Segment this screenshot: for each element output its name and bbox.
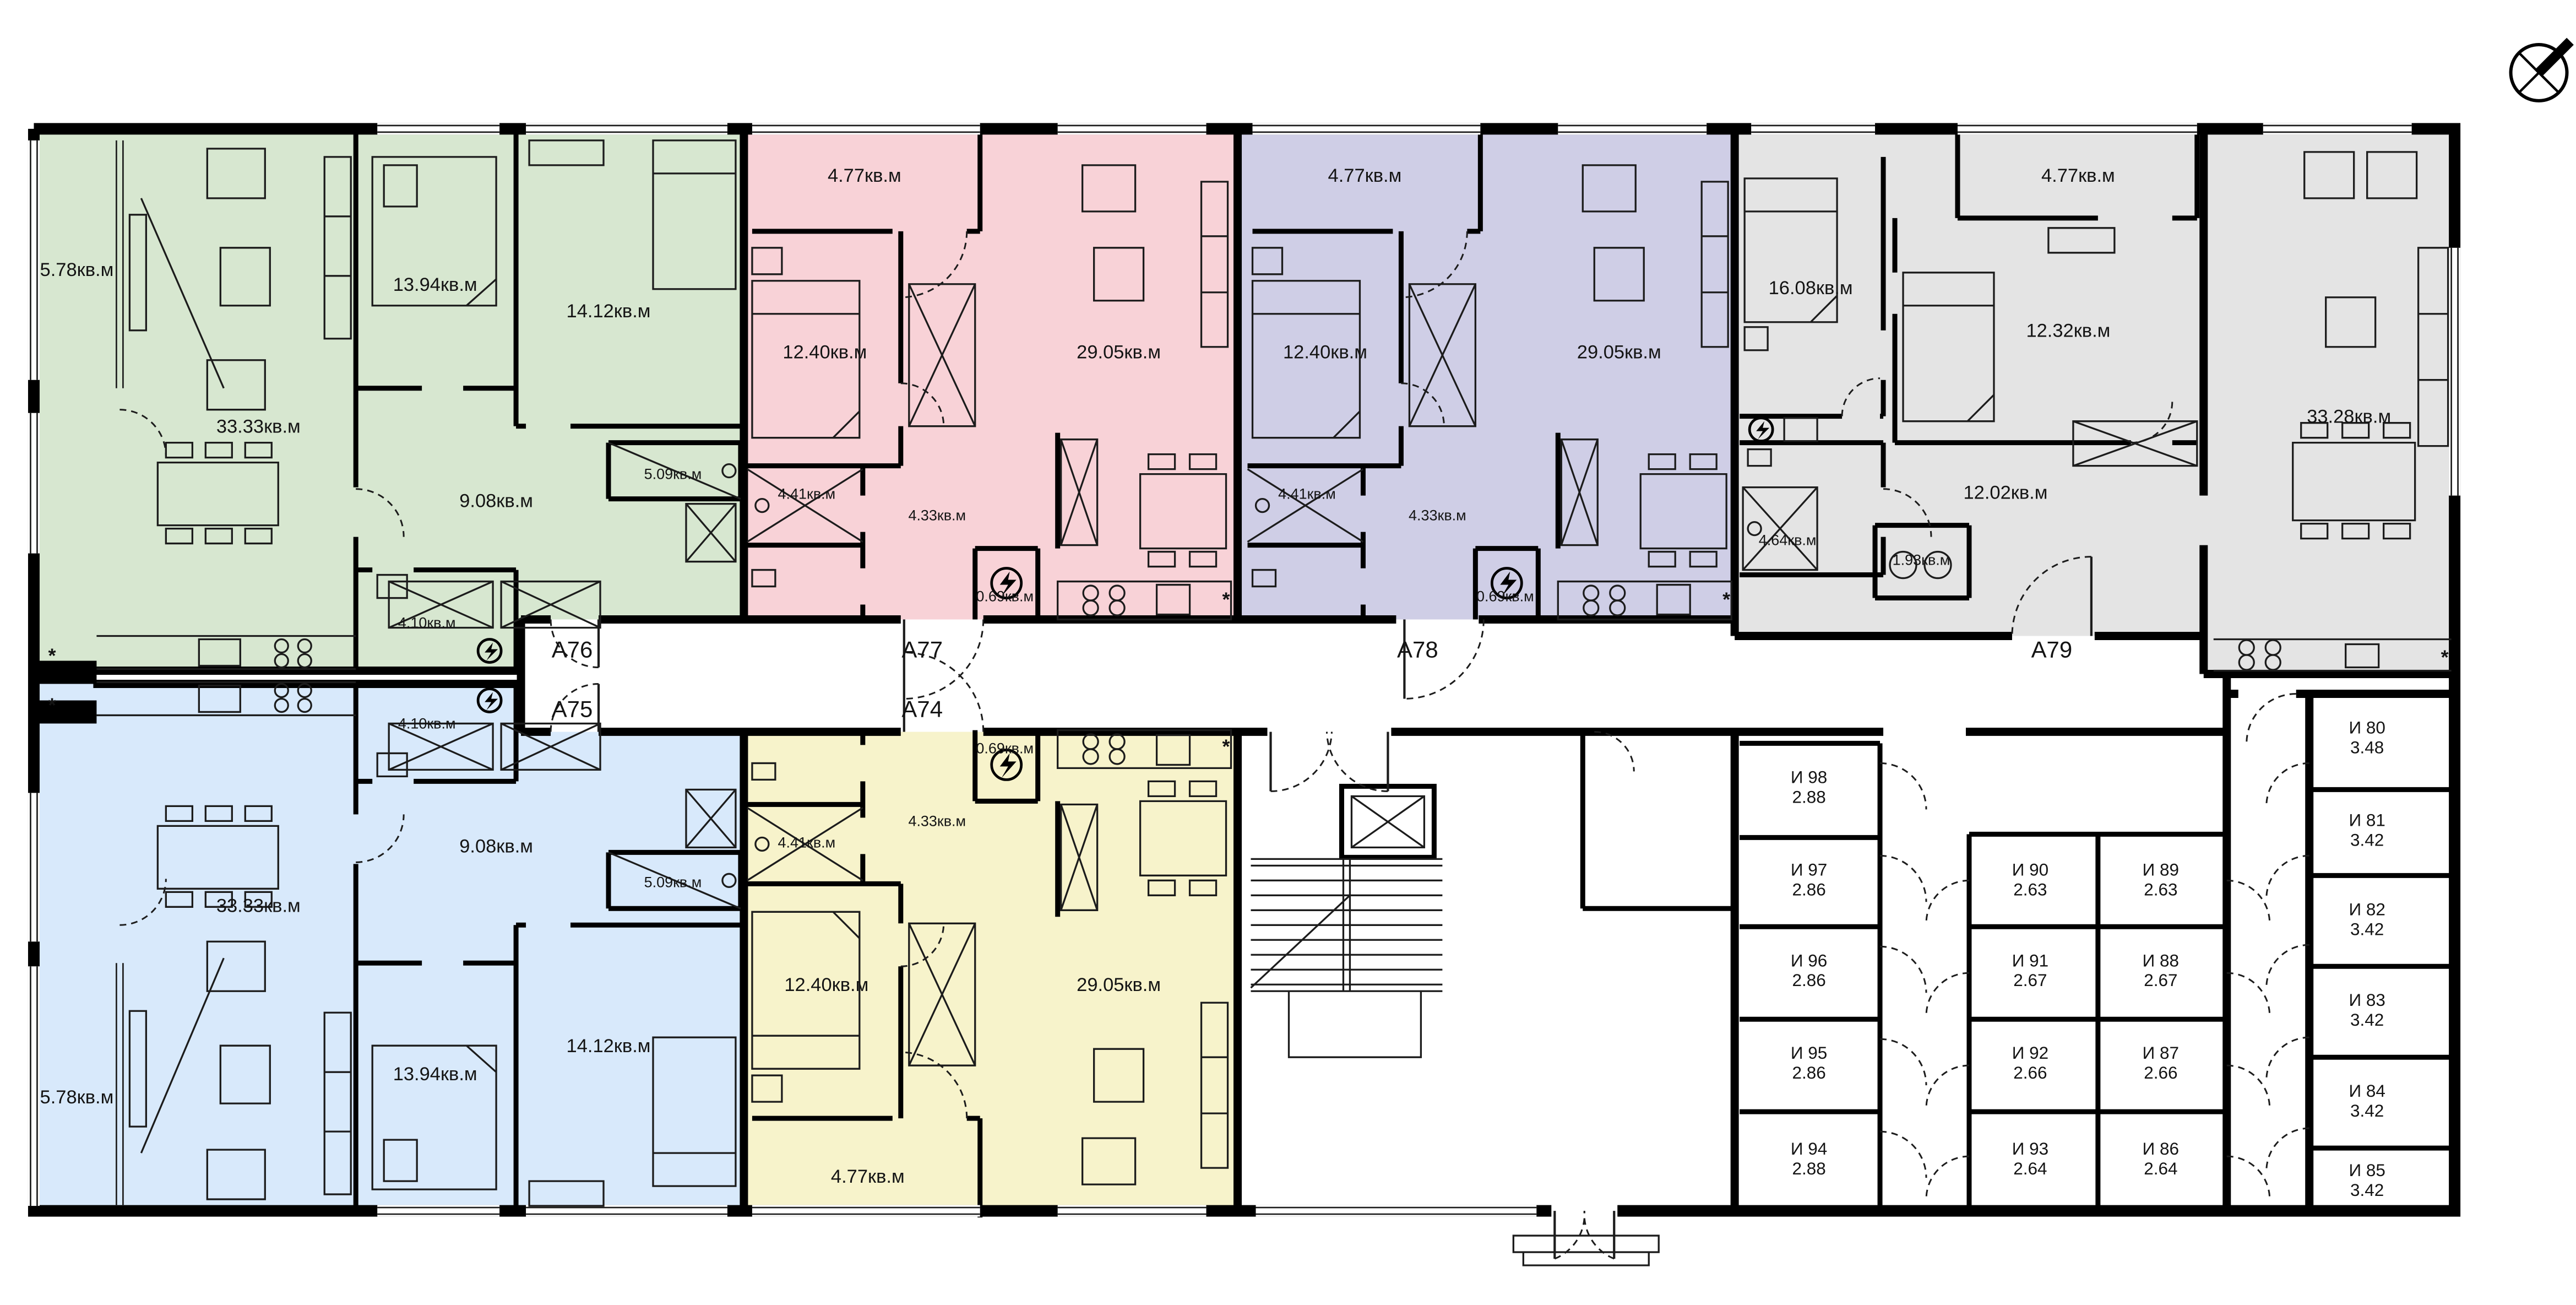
room-area-label: 0.69кв.м (976, 740, 1034, 756)
room-area-label: 4.41кв.м (778, 834, 836, 851)
room-area-label: 4.33кв.м (908, 813, 966, 829)
apartment-number-label: A76 (552, 636, 593, 662)
note-asterisk: * (48, 694, 56, 716)
storage-unit-label: И 972.86 (1791, 860, 1827, 899)
room-area-label: 12.02кв.м (1963, 483, 2047, 503)
room-area-label: 4.77кв.м (831, 1166, 905, 1187)
room-area-label: 4.10кв.м (398, 715, 456, 732)
storage-unit-label: И 942.88 (1791, 1139, 1827, 1178)
storage-unit-label: И 922.66 (2012, 1043, 2048, 1082)
storage-unit-label: И 912.67 (2012, 951, 2048, 990)
apartment-number-label: A78 (1397, 636, 1438, 662)
storage-unit-label: И 882.67 (2143, 951, 2179, 990)
room-area-label: 4.41кв.м (1278, 486, 1336, 502)
apartment-a79-region (1735, 129, 2454, 674)
storage-unit-label: И 823.42 (2349, 900, 2385, 939)
room-area-label: 14.12кв.м (567, 1036, 651, 1057)
room-area-label: 4.77кв.м (1328, 165, 1402, 186)
room-area-label: 1.93кв.м (1893, 552, 1950, 568)
note-asterisk: * (1222, 735, 1230, 757)
room-area-label: 4.41кв.м (778, 486, 836, 502)
room-area-label: 29.05кв.м (1077, 974, 1161, 995)
storage-unit-label: И 962.86 (1791, 951, 1827, 990)
note-asterisk: * (1722, 588, 1730, 611)
apartment-number-label: A77 (901, 636, 943, 662)
note-asterisk: * (48, 644, 56, 667)
room-area-label: 9.08кв.м (459, 491, 533, 512)
storage-unit-label: И 803.48 (2349, 718, 2385, 757)
elevator-shaft (1341, 786, 1434, 857)
room-area-label: 9.08кв.м (459, 836, 533, 857)
room-area-label: 4.33кв.м (908, 507, 966, 524)
room-area-label: 33.33кв.м (216, 895, 301, 916)
floor-plan-canvas: 5.78кв.м 33.33кв.м 13.94кв.м 14.12кв.м 9… (0, 0, 2576, 1305)
room-area-label: 29.05кв.м (1577, 342, 1661, 363)
storage-unit-label: И 932.64 (2012, 1139, 2048, 1178)
apartment-number-label: A75 (552, 696, 593, 722)
room-area-label: 4.64кв.м (1759, 532, 1817, 549)
apartment-number-label: A79 (2031, 636, 2073, 662)
storage-unit-label: И 833.42 (2349, 990, 2385, 1030)
partition-walls-storage (1740, 743, 2454, 1211)
storage-unit-label: И 902.63 (2012, 860, 2048, 899)
room-area-label: 5.09кв.м (644, 874, 702, 890)
room-area-label: 13.94кв.м (393, 1064, 477, 1085)
room-area-label: 14.12кв.м (567, 301, 651, 322)
storage-unit-label: И 862.64 (2143, 1139, 2179, 1178)
room-area-label: 0.69кв.м (1476, 588, 1534, 605)
partition-walls-vestibule (1583, 732, 1731, 908)
room-area-label: 12.40кв.м (784, 974, 868, 995)
room-area-label: 12.40кв.м (782, 342, 867, 363)
storage-unit-label: И 892.63 (2143, 860, 2179, 899)
corridor-apartment-labels: A76 A77 A78 A79 A75 A74 (552, 636, 2073, 722)
room-area-label: 12.40кв.м (1283, 342, 1367, 363)
storage-unit-label: И 853.42 (2349, 1161, 2385, 1200)
room-area-label: 5.78кв.м (40, 259, 114, 280)
storage-unit-label: И 843.42 (2349, 1081, 2385, 1120)
storage-unit-label: И 982.88 (1791, 767, 1827, 806)
room-area-label: 33.28кв.м (2307, 407, 2391, 427)
room-area-label: 0.69кв.м (976, 588, 1034, 605)
room-area-label: 12.32кв.м (2026, 321, 2110, 342)
apartment-number-label: A74 (901, 696, 943, 722)
room-area-label: 13.94кв.м (393, 274, 477, 295)
storage-unit-label: И 952.86 (1791, 1043, 1827, 1082)
staircase (1251, 859, 1443, 1057)
room-area-label: 33.33кв.м (216, 416, 301, 437)
floor-plan-drawing: 5.78кв.м 33.33кв.м 13.94кв.м 14.12кв.м 9… (0, 0, 2576, 1305)
storage-unit-label: И 872.66 (2143, 1043, 2179, 1082)
north-compass-icon (2511, 41, 2570, 101)
room-area-label: 29.05кв.м (1077, 342, 1161, 363)
room-area-label: 5.09кв.м (644, 466, 702, 483)
left-wall-block-upper (34, 660, 96, 684)
storage-unit-label: И 813.42 (2349, 810, 2385, 849)
left-wall-block-lower (34, 700, 96, 723)
room-area-label: 4.33кв.м (1409, 507, 1466, 524)
room-area-label: 4.77кв.м (2041, 165, 2115, 186)
room-area-label: 16.08кв.м (1769, 278, 1853, 299)
note-asterisk: * (1222, 588, 1230, 611)
note-asterisk: * (2441, 646, 2449, 668)
room-area-label: 4.77кв.м (828, 165, 901, 186)
room-area-label: 4.10кв.м (398, 615, 456, 631)
room-area-label: 5.78кв.м (40, 1087, 114, 1108)
